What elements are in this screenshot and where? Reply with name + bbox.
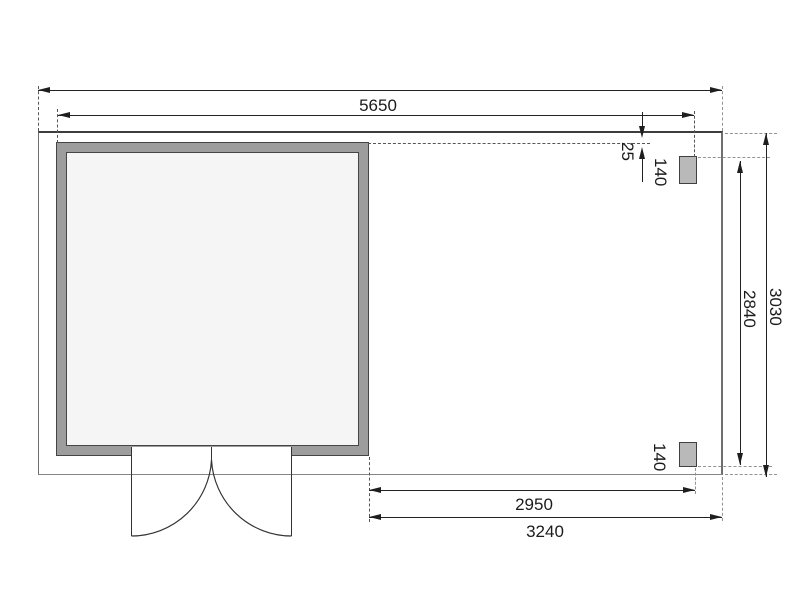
door-opening xyxy=(131,447,291,458)
dim-line-bottom-inner-width xyxy=(369,490,695,491)
dim-line-top-width xyxy=(58,115,694,116)
arrowhead xyxy=(737,453,743,465)
arrowhead xyxy=(38,87,50,93)
dim-line-top-outer xyxy=(38,90,722,91)
dim-label-bottom-inner-width: 2950 xyxy=(512,496,556,513)
extension-line xyxy=(694,111,695,157)
arrowhead xyxy=(58,112,70,118)
dim-label-inner-depth: 2840 xyxy=(741,286,758,332)
dim-label-post-top: 140 xyxy=(652,155,669,189)
extension-line xyxy=(725,133,777,134)
arrowhead xyxy=(639,147,645,159)
dim-line-overhang-lower xyxy=(642,158,643,182)
dim-label-overhang: 25 xyxy=(619,136,636,166)
shed-interior xyxy=(66,152,359,446)
arrowhead xyxy=(682,112,694,118)
post-top-extension-line xyxy=(698,157,770,158)
dim-label-top-width: 5650 xyxy=(356,97,400,114)
floor-plan-drawing: 5650 25 140 2840 3030 140 2950 3240 xyxy=(0,0,800,600)
shed-wall-extension-line xyxy=(368,143,650,144)
extension-line xyxy=(722,477,723,521)
post-top-right xyxy=(679,156,697,184)
arrowhead xyxy=(763,133,769,145)
dim-label-post-bottom: 140 xyxy=(651,440,668,474)
dim-line-bottom-outer-width xyxy=(369,517,722,518)
post-bottom-right xyxy=(679,442,697,467)
post-bottom-extension-line xyxy=(698,466,772,467)
arrowhead xyxy=(710,87,722,93)
arrowhead xyxy=(737,161,743,173)
extension-line xyxy=(695,468,696,494)
arrowhead xyxy=(369,514,381,520)
arrowhead xyxy=(639,126,645,138)
dim-label-outer-depth: 3030 xyxy=(767,284,784,330)
arrowhead xyxy=(763,465,769,477)
arrowhead xyxy=(369,487,381,493)
dim-label-bottom-outer-width: 3240 xyxy=(523,523,567,540)
extension-line xyxy=(725,474,777,475)
arrowhead xyxy=(683,487,695,493)
arrowhead xyxy=(710,514,722,520)
extension-line xyxy=(722,86,723,131)
